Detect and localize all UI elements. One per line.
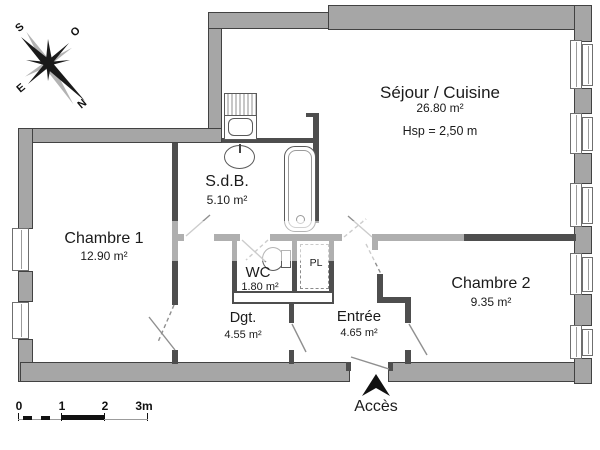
room-area-dgt: 4.55 m² [224, 329, 261, 342]
scale-dash [23, 416, 32, 420]
room-label-sejour: Séjour / Cuisine [380, 83, 500, 103]
scale-label-1: 1 [59, 399, 66, 413]
room-label-wc: WC [246, 264, 271, 281]
scale-label-2: 2 [102, 399, 109, 413]
room-area-chambre1: 12.90 m² [80, 250, 127, 264]
compass-east: E [14, 81, 27, 95]
scale-solid-segment [61, 415, 104, 420]
room-area-sdb: 5.10 m² [207, 194, 248, 208]
door-leaf [409, 324, 427, 355]
door-leaf [292, 324, 306, 352]
floor-plan: Séjour / Cuisine 26.80 m² Hsp = 2,50 m C… [0, 0, 600, 450]
room-height-note: Hsp = 2,50 m [403, 124, 478, 138]
compass-rose-icon: S O E N [8, 18, 100, 114]
room-label-chambre1: Chambre 1 [64, 230, 143, 248]
scale-label-3m: 3m [135, 399, 152, 413]
room-label-sdb: S.d.B. [205, 173, 249, 191]
scale-label-0: 0 [16, 399, 23, 413]
closet-label: PL [310, 257, 323, 269]
door-arc [158, 305, 174, 342]
room-area-entree: 4.65 m² [340, 327, 377, 340]
room-label-dgt: Dgt. [230, 310, 257, 327]
compass-north: N [75, 97, 89, 111]
room-area-chambre2: 9.35 m² [471, 296, 512, 310]
room-label-entree: Entrée [337, 308, 381, 325]
room-area-wc: 1.80 m² [241, 281, 278, 294]
compass-south: S [13, 21, 26, 35]
room-area-sejour: 26.80 m² [416, 102, 463, 116]
scale-dash [41, 416, 50, 420]
access-arrow-icon [361, 374, 393, 398]
access-label: Accès [354, 398, 398, 416]
watermark [138, 221, 464, 261]
entrance-door-leaf [351, 357, 389, 369]
room-label-chambre2: Chambre 2 [451, 275, 530, 293]
compass-west: O [68, 24, 83, 39]
